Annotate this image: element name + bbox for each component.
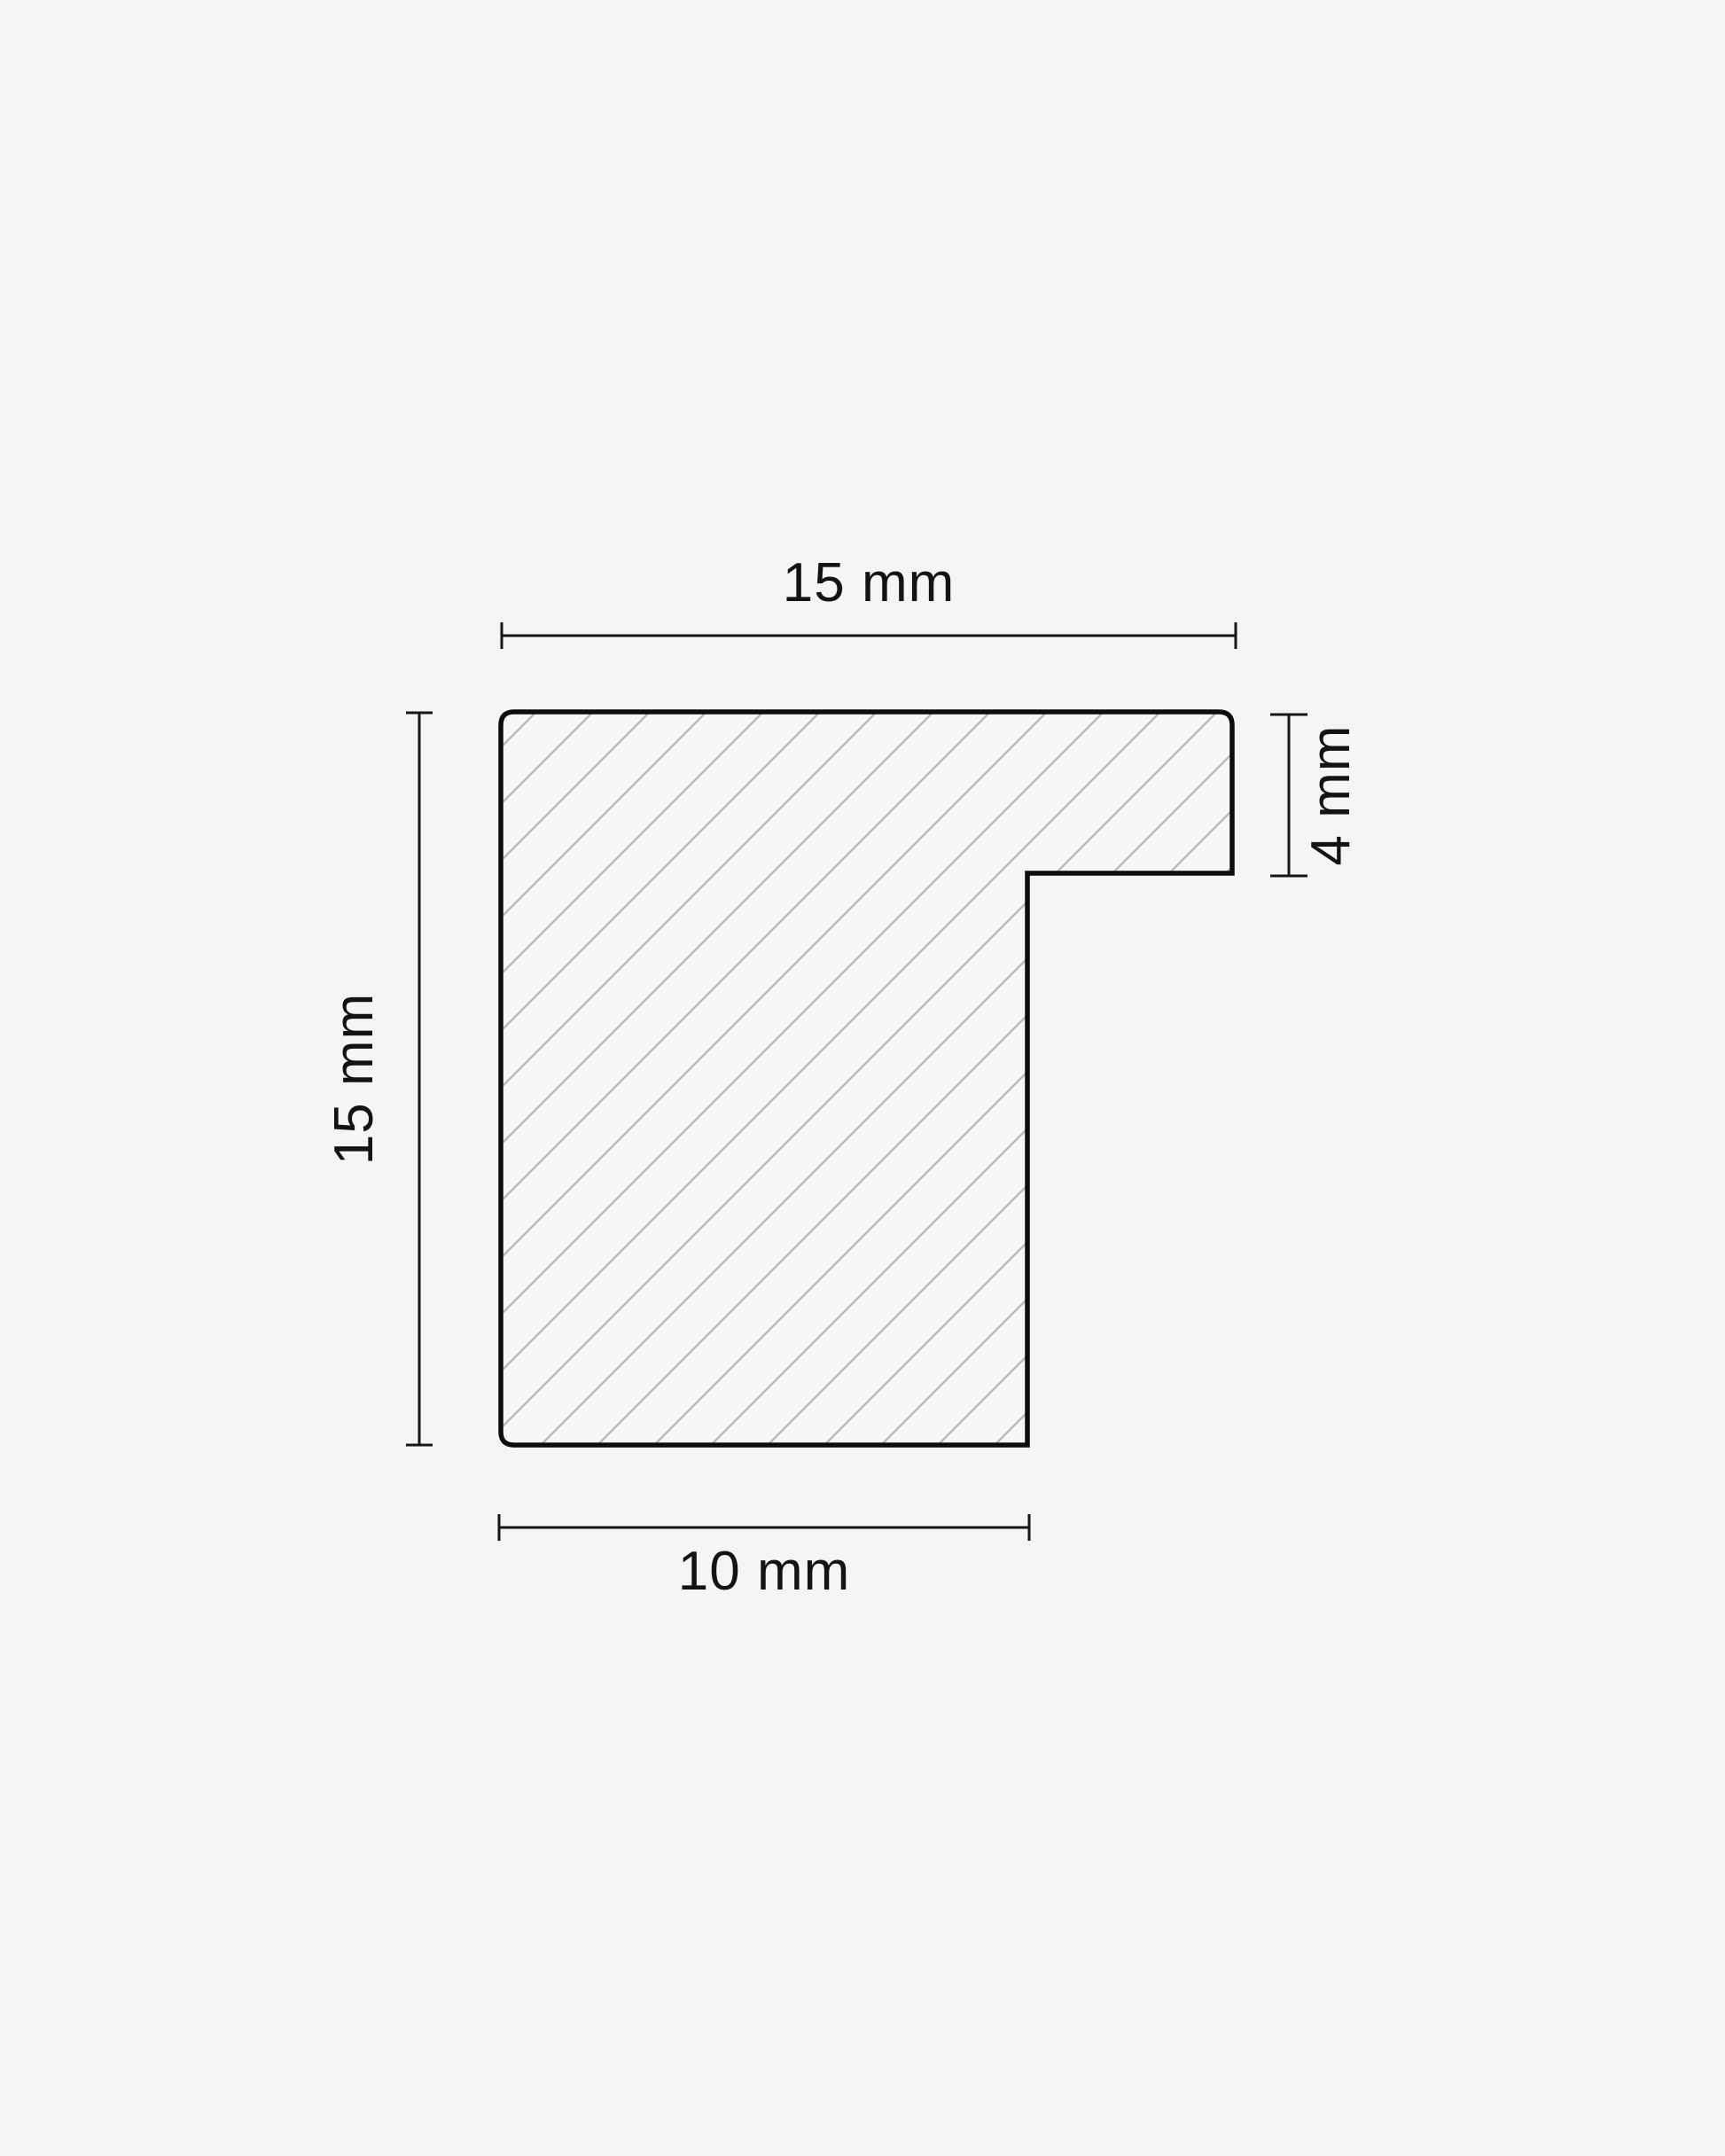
dimension-bottom-label: 10 mm	[678, 1541, 850, 1602]
profile-cross-section	[501, 712, 1232, 1445]
dimension-top	[502, 622, 1236, 649]
diagram-canvas: 15 mm 15 mm 4 mm 10 mm	[0, 0, 1725, 2156]
dimension-left-label: 15 mm	[324, 993, 385, 1165]
dimension-left	[406, 713, 433, 1445]
dimension-right-label: 4 mm	[1300, 725, 1362, 866]
dimension-top-label: 15 mm	[783, 552, 955, 613]
dimension-bottom	[499, 1514, 1029, 1541]
profile-hatching	[501, 712, 1232, 1445]
moulding-cross-section-diagram: 15 mm 15 mm 4 mm 10 mm	[0, 0, 1725, 2156]
